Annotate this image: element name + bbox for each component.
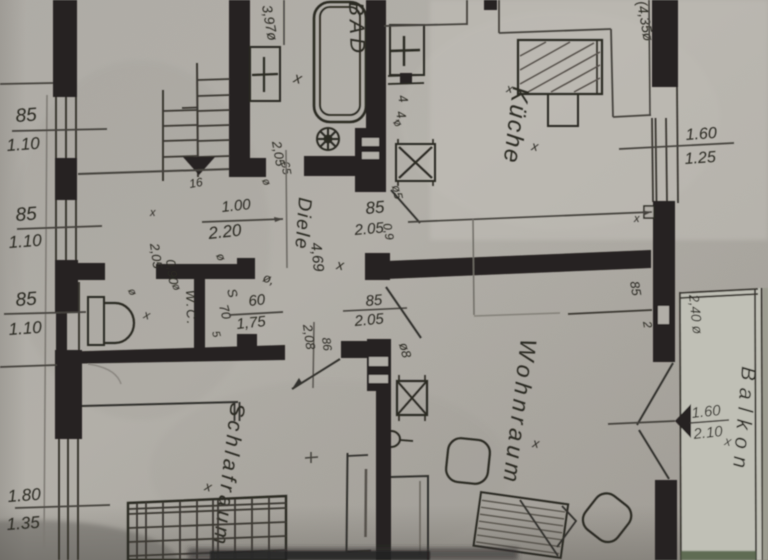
svg-text:1.10: 1.10 bbox=[8, 318, 43, 339]
svg-text:1.60: 1.60 bbox=[691, 402, 722, 422]
svg-text:60: 60 bbox=[248, 291, 267, 310]
svg-text:85: 85 bbox=[15, 105, 38, 127]
svg-text:85: 85 bbox=[15, 204, 38, 226]
svg-text:86: 86 bbox=[319, 336, 335, 351]
svg-text:1.60: 1.60 bbox=[685, 125, 717, 144]
svg-text:1.25: 1.25 bbox=[684, 149, 716, 168]
svg-text:x: x bbox=[633, 213, 640, 225]
svg-text:1.80: 1.80 bbox=[7, 485, 42, 506]
svg-text:2.10: 2.10 bbox=[692, 423, 724, 443]
svg-text:1,75: 1,75 bbox=[236, 313, 267, 333]
svg-text:1.35: 1.35 bbox=[6, 513, 41, 534]
svg-text:85: 85 bbox=[15, 289, 38, 311]
svg-text:2.05: 2.05 bbox=[353, 310, 385, 330]
svg-text:x: x bbox=[149, 207, 156, 219]
svg-text:2.05: 2.05 bbox=[353, 219, 385, 239]
svg-text:1.00: 1.00 bbox=[221, 196, 252, 216]
svg-text:W.C.: W.C. bbox=[183, 290, 199, 327]
svg-text:85: 85 bbox=[365, 292, 384, 310]
svg-text:BAD: BAD bbox=[344, 1, 369, 57]
svg-text:1.10: 1.10 bbox=[6, 134, 41, 155]
svg-text:0,9: 0,9 bbox=[380, 222, 397, 241]
svg-text:85: 85 bbox=[365, 197, 386, 218]
svg-text:1.10: 1.10 bbox=[8, 231, 43, 252]
svg-text:2.20: 2.20 bbox=[206, 221, 242, 244]
svg-text:4,69: 4,69 bbox=[307, 242, 327, 273]
svg-text:16: 16 bbox=[188, 175, 204, 191]
